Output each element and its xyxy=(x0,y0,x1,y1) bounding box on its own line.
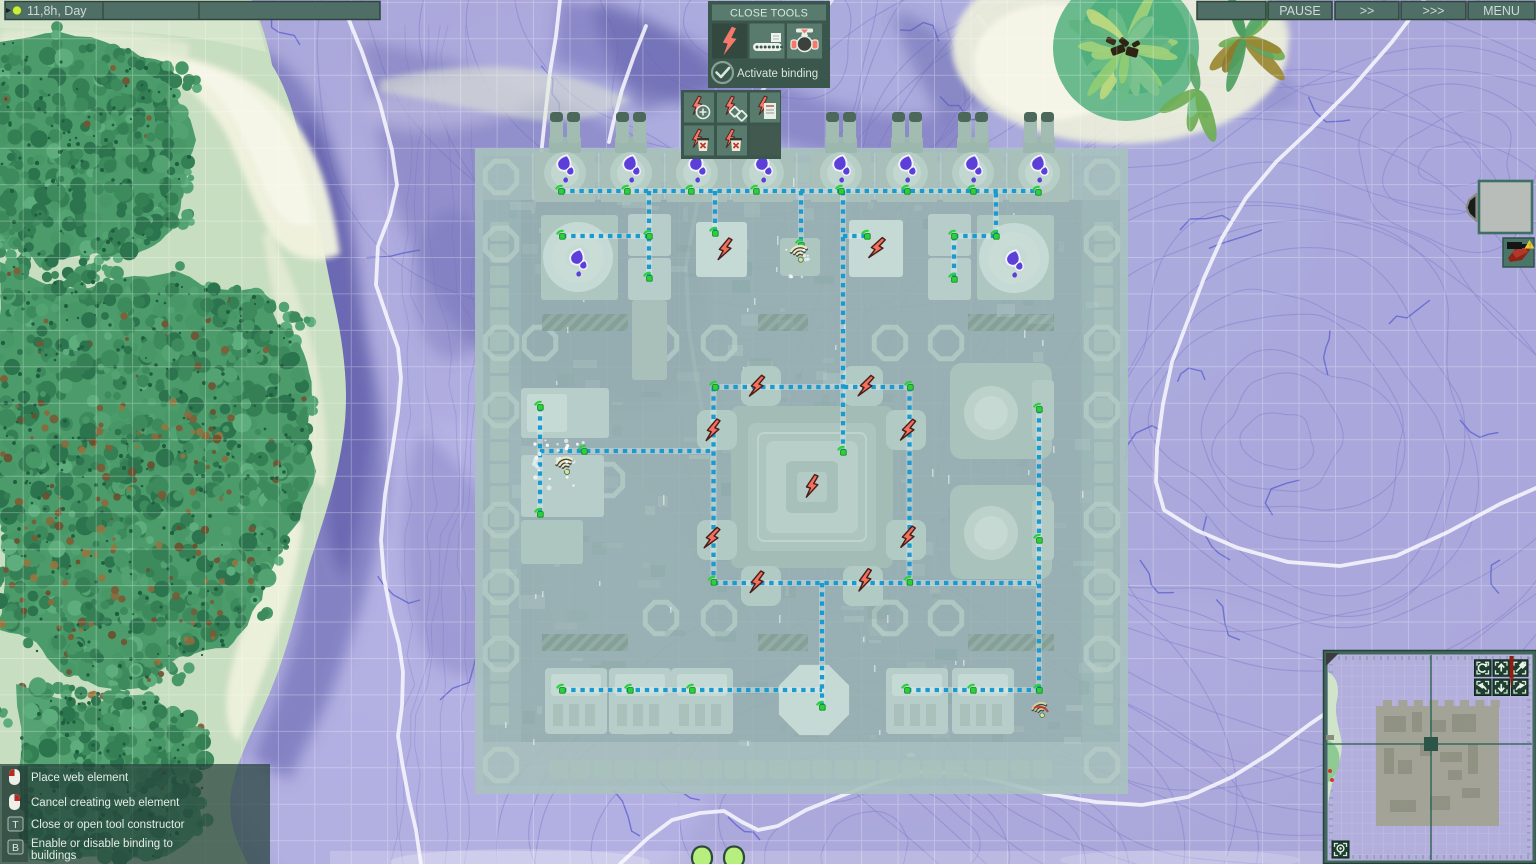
svg-text:PAUSE: PAUSE xyxy=(1279,4,1320,18)
svg-text:Cancel creating web element: Cancel creating web element xyxy=(31,797,180,809)
svg-text:Place web element: Place web element xyxy=(31,772,129,784)
svg-text:>>>: >>> xyxy=(1423,4,1445,18)
svg-text:T: T xyxy=(12,819,19,831)
svg-text:Enable or disable binding to: Enable or disable binding to xyxy=(31,838,173,850)
svg-text:Activate binding: Activate binding xyxy=(737,68,818,80)
svg-text:buildings: buildings xyxy=(31,850,77,862)
svg-text:Close or open tool constructor: Close or open tool constructor xyxy=(31,819,185,831)
svg-text:MENU: MENU xyxy=(1483,4,1520,18)
svg-text:>>: >> xyxy=(1360,4,1375,18)
svg-text:B: B xyxy=(12,842,19,854)
svg-text:CLOSE TOOLS: CLOSE TOOLS xyxy=(730,8,808,20)
svg-text:11,8h, Day: 11,8h, Day xyxy=(27,4,87,18)
